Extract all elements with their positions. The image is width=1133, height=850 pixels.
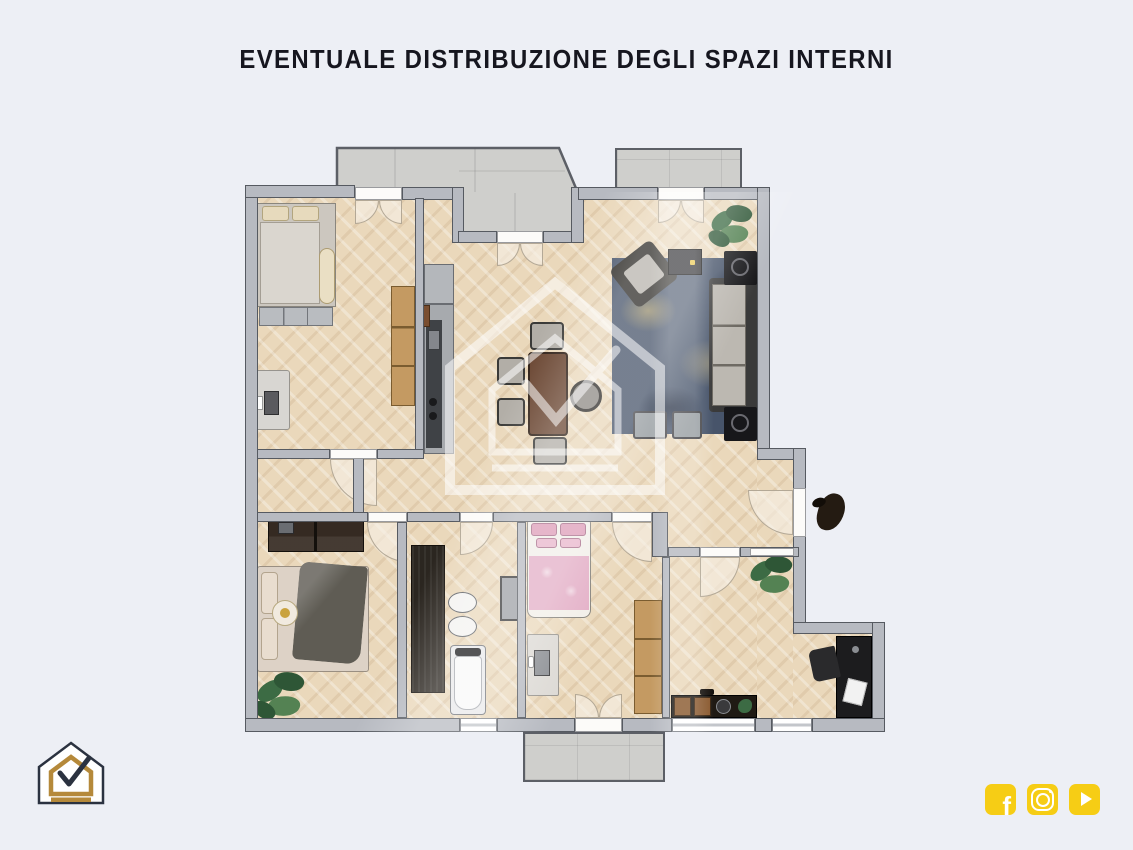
door-bedroom3	[612, 512, 652, 522]
door-bedroom2	[368, 512, 407, 522]
flower-pillow-center	[280, 608, 290, 618]
wall-bath-bedroom3	[517, 522, 526, 718]
youtube-play-triangle	[1081, 792, 1092, 806]
wall-vestibule	[353, 457, 364, 514]
wall-bottom-4	[755, 718, 772, 732]
wall-bedroom3-study	[662, 557, 670, 718]
stove-burner	[429, 398, 437, 406]
laptop-kids	[534, 650, 550, 676]
bathroom-sink	[448, 592, 477, 613]
speaker-cone	[731, 258, 749, 276]
blanket-2	[292, 561, 368, 665]
wall-bottom-2	[497, 718, 575, 732]
door-main-entrance	[793, 488, 806, 537]
wall-notch-bottom-1	[458, 231, 497, 243]
kitchen-sink	[428, 330, 440, 350]
bathroom-sink	[448, 616, 477, 637]
phone-kids	[528, 656, 534, 668]
pouf	[672, 411, 702, 439]
window-bathroom	[460, 718, 497, 732]
pillow-pink-small	[536, 538, 557, 548]
wall-corridor-3	[493, 512, 612, 522]
pouf	[633, 411, 667, 439]
wall-bottom-3	[622, 718, 672, 732]
wall-bedroom1-bottom-2	[377, 449, 424, 459]
door-leaf-hall	[750, 548, 794, 556]
laundry-wood-door	[674, 697, 691, 716]
wall-right-upper	[757, 187, 770, 460]
wall-top-3	[578, 187, 658, 200]
side-table-round	[570, 380, 602, 412]
wall-right-mid-1	[793, 448, 806, 490]
dining-chair	[497, 398, 525, 426]
wall-corridor-1	[257, 512, 368, 522]
wall-bedroom1-bottom-1	[257, 449, 330, 459]
door-bedroom1	[330, 449, 377, 459]
desk-lamp-dot	[852, 646, 859, 653]
bathroom-cabinet	[411, 545, 445, 693]
sofa-cushions	[712, 284, 746, 406]
floor-plan	[0, 0, 1133, 850]
laundry-wood-door	[694, 697, 711, 716]
door-bedroom1-terrace	[355, 187, 402, 200]
dining-chair	[530, 322, 564, 350]
pillow-pink	[531, 523, 557, 536]
dining-chair	[497, 357, 525, 385]
kitchen-counter-top	[424, 264, 454, 304]
balcony-bottom	[523, 732, 665, 782]
dining-table	[528, 352, 568, 436]
door-bathroom	[460, 512, 493, 522]
instagram-icon[interactable]	[1027, 784, 1058, 815]
youtube-icon[interactable]	[1069, 784, 1100, 815]
speaker-cone	[731, 414, 749, 432]
pillow	[262, 206, 289, 221]
door-bedroom3-balcony	[575, 718, 622, 732]
sideboard-1	[391, 286, 415, 406]
house-check-logo	[36, 740, 106, 806]
wall-bottom-1	[245, 718, 460, 732]
pillow-pink	[560, 523, 586, 536]
bathtub-inner	[454, 656, 482, 710]
dining-chair	[533, 437, 567, 465]
blanket-pink	[529, 556, 589, 610]
wall-corridor-4	[652, 512, 668, 557]
wall-corridor-2	[407, 512, 460, 522]
window-study-1	[672, 718, 755, 732]
instagram-lens	[1036, 793, 1050, 807]
plant-study	[745, 553, 795, 599]
wardrobe-2-tv	[278, 522, 294, 534]
laundry-box-top	[700, 689, 714, 695]
wall-hall-study-1	[668, 547, 700, 557]
facebook-icon[interactable]: f	[985, 784, 1016, 815]
door-entry-terrace	[497, 231, 543, 243]
wall-bottom-5	[812, 718, 885, 732]
pillow	[261, 618, 278, 660]
wall-bedroom2-bath	[397, 522, 407, 718]
washing-machine	[716, 699, 731, 714]
window-study-2	[772, 718, 812, 732]
wall-top-1	[245, 185, 355, 198]
storage-bench	[259, 307, 333, 326]
facebook-glyph: f	[1002, 791, 1011, 815]
mattress-1	[260, 222, 320, 304]
wall-right-lower	[872, 622, 885, 732]
pillow	[292, 206, 319, 221]
door-living-terrace	[658, 187, 704, 200]
plant-bedroom2	[250, 668, 308, 724]
plant-living	[706, 203, 754, 251]
door-study	[700, 547, 740, 557]
laptop-1	[264, 391, 279, 415]
tv-console	[668, 249, 702, 275]
stove-burner	[429, 412, 437, 420]
wardrobe-kids	[634, 600, 662, 714]
pillow-pink-small	[560, 538, 581, 548]
bathtub-headrest	[455, 648, 481, 656]
rolled-blanket	[319, 248, 335, 304]
instagram-flash-dot	[1049, 790, 1052, 793]
tv-console-light	[690, 260, 695, 265]
wall-bedroom1-kitchen	[415, 198, 424, 452]
